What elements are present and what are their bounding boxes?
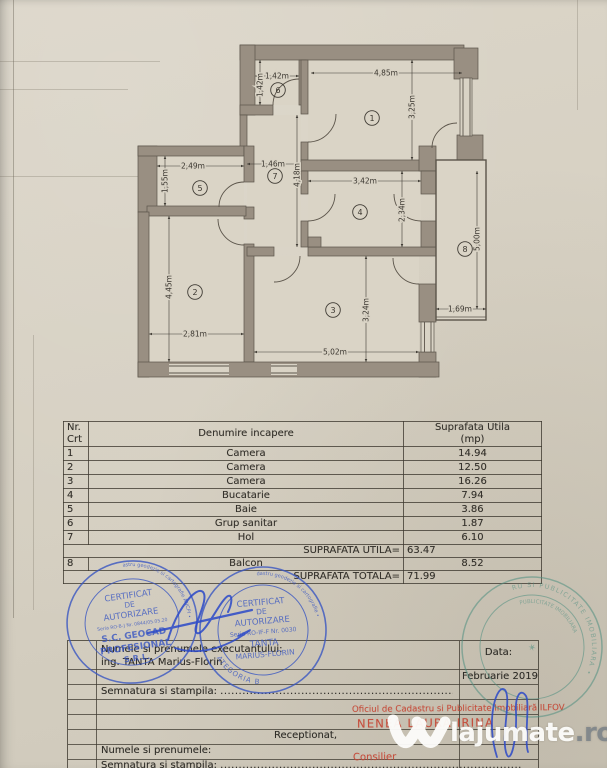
stamp-text: CERTIFICAT (236, 596, 285, 610)
room-number: 8 (462, 245, 467, 254)
room-number: 1 (369, 114, 374, 123)
stamp-text: Seria RO-B-J Nr. 0844/05.05.20 (97, 617, 168, 633)
dimension-label: 2,34m (398, 198, 407, 222)
dimension-label: 1,46m (261, 160, 285, 169)
total-totala-row: SUPRAFATA TOTALA=71.99 (64, 571, 542, 584)
receptionat-label: Receptionat, (274, 730, 337, 741)
stamp-text: Seria RO-IF-F Nr. 0030 (230, 626, 297, 639)
dimension-label: 5,00m (473, 227, 482, 251)
total-utila-row: SUPRAFATA UTILA=63.47 (64, 545, 542, 558)
room-number: 5 (197, 184, 202, 193)
dimension-label: 2,49m (181, 162, 205, 171)
watermark-text: lajumate.ro (450, 718, 607, 748)
room-number: 4 (357, 208, 362, 217)
stamp-text: AUTORIZARE (103, 606, 159, 624)
dimension-label: 1,42m (265, 72, 289, 81)
bleed-line (577, 0, 578, 110)
table-row: 3Camera16.26 (64, 475, 542, 489)
date-label: Data: (459, 647, 538, 658)
room-number: 6 (275, 86, 280, 95)
dimension-label: 5,02m (323, 348, 347, 357)
executant-value: ing. TANTA Marius-Florin (101, 657, 223, 668)
dimension-label: 3,42m (353, 177, 377, 186)
room-number: 7 (272, 172, 277, 181)
table-row: 6Grup sanitar1.87 (64, 517, 542, 531)
bleed-line (0, 89, 128, 90)
col-header-name: Denumire incapere (89, 422, 404, 447)
table-row: 1Camera14.94 (64, 447, 542, 461)
stamp-text: DE (256, 607, 268, 617)
dimension-label: 4,45m (165, 275, 174, 299)
col-header-area: Suprafata Utila(mp) (404, 422, 542, 447)
room-number: 3 (330, 306, 335, 315)
watermark: lajumate.ro (386, 696, 607, 768)
scanned-document-page: 1,42m 1,42m 4,85m 3,25m 2,49m 1,55m 1,46… (0, 0, 607, 768)
form-divider (96, 641, 97, 768)
dimension-label: 2,81m (183, 330, 207, 339)
floor-plan: 1,42m 1,42m 4,85m 3,25m 2,49m 1,55m 1,46… (129, 29, 501, 387)
dimension-label: 3,25m (408, 95, 417, 119)
name-label: Numele si prenumele: (101, 745, 211, 756)
form-line (68, 684, 538, 685)
table-row: 2Camera12.50 (64, 461, 542, 475)
table-row: 5Baie3.86 (64, 503, 542, 517)
dimension-label: 1,42m (256, 73, 265, 97)
dimension-label: 3,24m (362, 298, 371, 322)
col-header-nr: Nr.Crt (64, 422, 89, 447)
executant-label: Numele si prenumele executantului: (101, 644, 283, 655)
date-value: Februarie 2019 (462, 671, 538, 682)
paper-fold-line (13, 0, 14, 618)
table-row: 7Hol6.10 (64, 531, 542, 545)
table-row: 4Bucatarie7.94 (64, 489, 542, 503)
dimension-label: 4,18m (293, 163, 302, 187)
stamp-text: AUTORIZARE (234, 615, 290, 630)
stamp-text: DE (124, 599, 136, 609)
lajumate-logo-icon (386, 700, 452, 766)
dimension-label: 4,85m (374, 69, 398, 78)
dimension-label: 1,69m (448, 305, 472, 314)
dimension-label: 1,55m (161, 169, 170, 193)
room-number: 2 (192, 288, 197, 297)
stamp-text: CERTIFICAT (104, 588, 154, 605)
form-line (68, 669, 538, 670)
bleed-line (33, 335, 34, 610)
area-table: Nr.Crt Denumire incapere Suprafata Utila… (63, 421, 542, 584)
table-row-balcon: 8Balcon8.52 (64, 558, 542, 571)
